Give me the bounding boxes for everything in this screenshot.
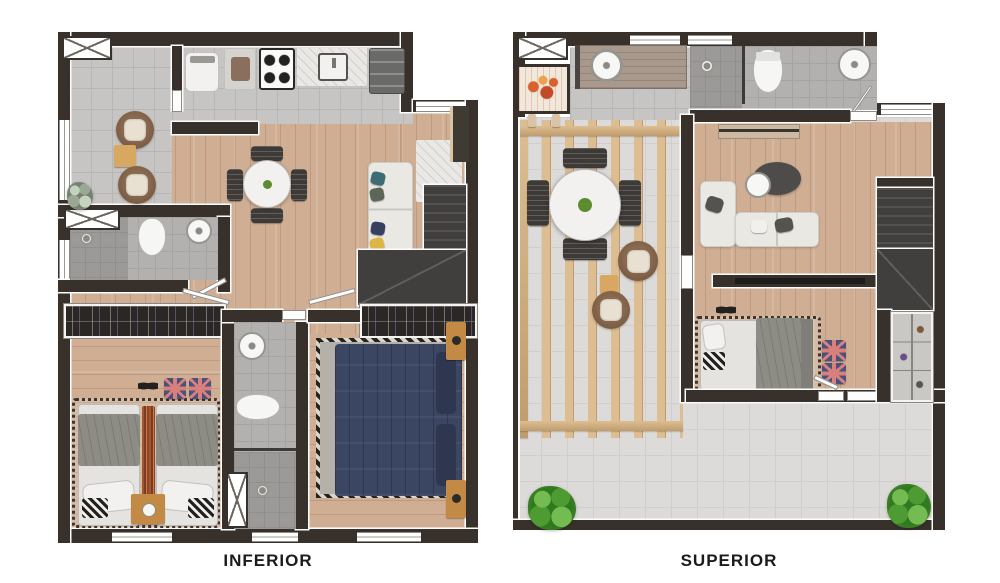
gourmet-sink bbox=[590, 49, 623, 82]
twin-bed-2-accent bbox=[188, 498, 214, 518]
shaft-bathroom1 bbox=[64, 208, 120, 230]
window-bottom-3 bbox=[357, 532, 421, 542]
sup-sofa-pillow-white bbox=[751, 220, 767, 233]
wardrobe-left bbox=[64, 304, 226, 338]
second-washer bbox=[224, 48, 256, 90]
twin-nightstand bbox=[131, 494, 165, 524]
sup-bathroom-shower bbox=[690, 46, 742, 110]
label-superior: SUPERIOR bbox=[513, 551, 945, 571]
terrace-parapet-left bbox=[513, 117, 520, 520]
sup-bed-pillow bbox=[701, 323, 726, 352]
sup-toilet-tank bbox=[756, 52, 780, 61]
nightstand-lamp bbox=[142, 503, 156, 517]
sup-sofa-chaise bbox=[700, 181, 736, 247]
side-table bbox=[745, 172, 771, 198]
sup-wall-right bbox=[933, 103, 945, 530]
lounge-chair-2-cushion bbox=[600, 299, 622, 321]
wall-bath2-top bbox=[222, 310, 282, 322]
dining-chair-south bbox=[251, 208, 283, 223]
sup-slippers bbox=[716, 304, 736, 316]
floor-plan-inferior bbox=[58, 32, 478, 543]
window-left-bathroom bbox=[59, 240, 70, 280]
wall-kitchen-dining bbox=[172, 122, 258, 134]
sup-elevator-shaft bbox=[517, 36, 568, 60]
double-nightstand-2 bbox=[446, 480, 466, 518]
balcony-chair-2-cushion bbox=[126, 174, 148, 196]
twin-bed-1-accent bbox=[82, 498, 108, 518]
tv bbox=[735, 278, 865, 284]
sup-wall-bottom bbox=[513, 520, 945, 530]
faucet bbox=[332, 58, 336, 68]
balcony-chair-1-cushion bbox=[124, 119, 146, 141]
closet bbox=[891, 312, 933, 402]
grill-leg-2 bbox=[552, 114, 560, 127]
barbecue-grill bbox=[516, 64, 570, 114]
wall-bath2-right bbox=[296, 322, 308, 529]
pergola-chair-east bbox=[619, 180, 641, 226]
bathroom2-toilet bbox=[236, 394, 280, 420]
dining-chair-west bbox=[227, 169, 243, 201]
sup-bathroom-door bbox=[850, 111, 877, 121]
washing-machine bbox=[185, 52, 219, 92]
dining-chair-east bbox=[291, 169, 307, 201]
sup-bathroom-sink bbox=[838, 48, 871, 81]
floor-plan-superior bbox=[513, 32, 945, 530]
terrace-plant-right bbox=[887, 484, 931, 528]
pergola-table-bowl bbox=[578, 198, 592, 212]
shaft-bathroom2 bbox=[226, 472, 248, 528]
stove bbox=[259, 48, 295, 90]
sup-bathroom-bottom-wall bbox=[690, 110, 850, 122]
elevator-shaft bbox=[62, 36, 112, 60]
grill-leg-1 bbox=[528, 114, 536, 127]
bathroom2-sink bbox=[238, 332, 266, 360]
sideboard bbox=[718, 124, 800, 139]
pergola-chair-south bbox=[563, 238, 607, 260]
terrace-plant-left bbox=[528, 486, 576, 530]
door-terrace-living bbox=[681, 255, 693, 289]
sup-bed-accent-pillow bbox=[703, 352, 725, 370]
lounge-chair-1-cushion bbox=[627, 250, 650, 273]
sup-bed-headboard bbox=[801, 319, 813, 392]
pouf-union-jack-2 bbox=[189, 378, 211, 399]
sofa-pillow-teal bbox=[370, 171, 386, 187]
bathroom1-sink bbox=[186, 218, 212, 244]
balcony-ottoman bbox=[114, 145, 136, 167]
dining-chair-north bbox=[251, 146, 283, 161]
sup-window-notch bbox=[881, 104, 939, 115]
sup-bedroom-door-gap-1 bbox=[818, 391, 844, 401]
washer-controls bbox=[190, 56, 215, 63]
sofa-pillow-navy bbox=[370, 221, 386, 236]
wall-bedroom-closet bbox=[877, 310, 891, 402]
bathroom2-divider bbox=[234, 448, 296, 451]
gourmet-counter-edge bbox=[575, 45, 580, 89]
double-bed-pillow-2 bbox=[436, 424, 456, 486]
sup-window-top-2 bbox=[688, 35, 732, 45]
window-bottom-1 bbox=[112, 532, 172, 542]
pergola-chair-north bbox=[563, 148, 607, 168]
double-nightstand-1 bbox=[446, 322, 466, 360]
window-bottom-2 bbox=[252, 532, 298, 542]
kitchen-sink bbox=[318, 53, 348, 81]
stairs-top-wall bbox=[877, 178, 933, 188]
sup-shower-partition bbox=[742, 46, 745, 104]
pergola-chair-west bbox=[527, 180, 549, 226]
wall-bedroom2-top-stub bbox=[308, 310, 360, 322]
slippers bbox=[138, 380, 158, 392]
double-bed-pillow-1 bbox=[436, 352, 456, 414]
door-balcony bbox=[172, 90, 182, 112]
sup-stairs-upper bbox=[877, 188, 933, 249]
fridge bbox=[369, 48, 405, 94]
wall-cabinet bbox=[450, 106, 469, 162]
pouf-union-jack-1 bbox=[164, 378, 186, 399]
stairs-lower-run bbox=[358, 250, 466, 305]
label-inferior: INFERIOR bbox=[58, 551, 478, 571]
bathroom2-shower-head bbox=[256, 484, 269, 497]
pergola-bottom-rail bbox=[515, 421, 683, 431]
wall-bath1-bottom bbox=[58, 280, 188, 292]
twin-bed-1-blanket bbox=[78, 414, 140, 466]
toilet bbox=[138, 218, 166, 256]
double-nightstand-2-knob bbox=[452, 494, 461, 503]
sup-pouf-1 bbox=[822, 340, 846, 361]
sup-shower-head bbox=[700, 59, 714, 73]
sup-bedroom-door-gap-2 bbox=[847, 391, 877, 401]
double-nightstand-1-knob bbox=[452, 336, 461, 345]
shower-head bbox=[80, 232, 93, 245]
sup-toilet bbox=[753, 49, 783, 93]
door-bath2 bbox=[282, 310, 306, 320]
sup-bed-blanket bbox=[756, 318, 806, 392]
balcony-plant bbox=[67, 182, 93, 210]
twin-bed-2-blanket bbox=[156, 414, 218, 466]
dining-table-bowl bbox=[263, 180, 272, 189]
washer-drum bbox=[231, 57, 250, 81]
sup-stairs-lower bbox=[877, 249, 933, 310]
pergola-top-rail bbox=[515, 126, 683, 136]
stairs-upper-run bbox=[424, 185, 466, 250]
sup-window-top-1 bbox=[630, 35, 680, 45]
